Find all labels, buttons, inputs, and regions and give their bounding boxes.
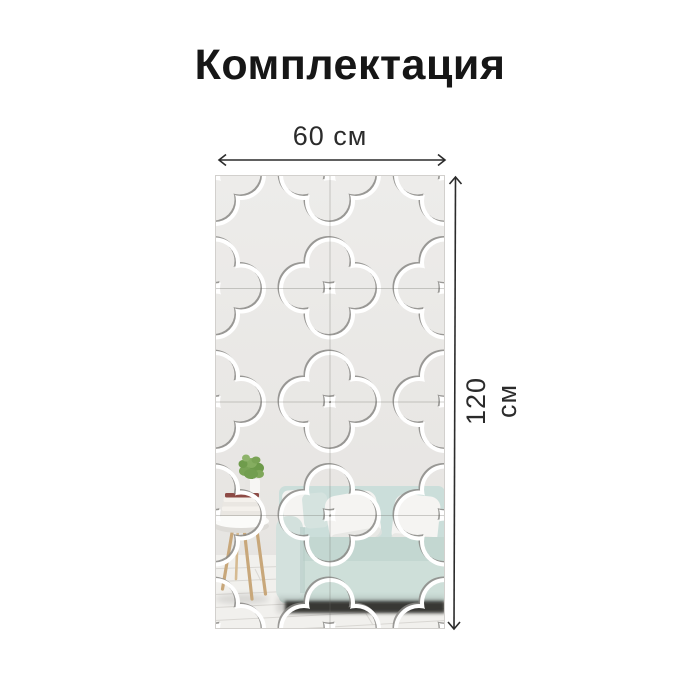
width-dimension-arrow (212, 150, 452, 170)
page-title: Комплектация (0, 41, 700, 90)
product-dimension-diagram: Комплектация 60 см 120 см (0, 0, 700, 700)
height-dimension-arrow (443, 168, 467, 638)
mirror-panel-image (215, 175, 445, 629)
width-dimension-label: 60 см (215, 121, 445, 152)
